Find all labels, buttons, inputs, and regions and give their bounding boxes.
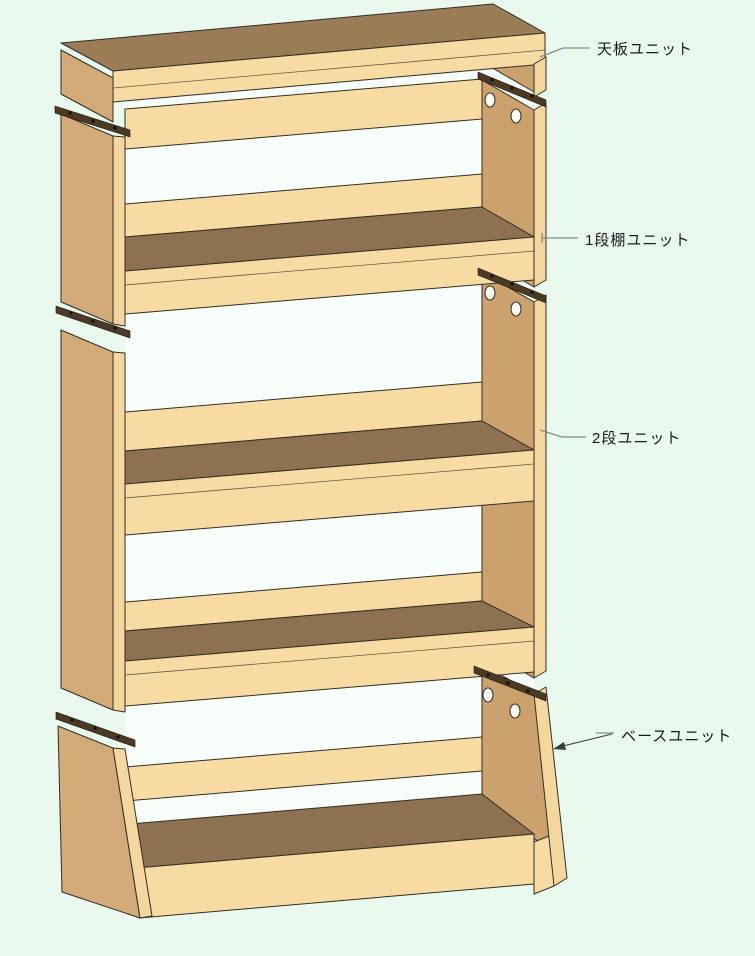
screw-hole (511, 109, 521, 123)
left-panel-tier2-front-edge (113, 352, 125, 712)
screw (530, 94, 533, 97)
callouts: 天板ユニット 1段棚ユニット 2段ユニット ベースユニット (540, 40, 732, 750)
screw (506, 681, 509, 684)
screw (70, 718, 73, 721)
diagram-canvas: 天板ユニット 1段棚ユニット 2段ユニット ベースユニット (0, 0, 755, 956)
screw-hole (511, 302, 521, 316)
screw (91, 319, 94, 322)
screw (510, 282, 513, 285)
label-tier2-unit: 2段ユニット (592, 430, 681, 447)
screw-hole (483, 688, 493, 702)
screw (510, 86, 513, 89)
screw (68, 111, 71, 114)
screw (93, 726, 96, 729)
leader-line-tier2 (540, 430, 586, 437)
label-top-unit: 天板ユニット (597, 40, 693, 58)
left-panel-tier1-unit (61, 114, 113, 324)
label-tier1-unit: 1段棚ユニット (585, 232, 690, 249)
leader-line-top-unit (540, 48, 590, 57)
arrow-line-base (559, 734, 612, 747)
label-base-unit: ベースユニット (621, 728, 732, 745)
screw (113, 326, 116, 329)
left-panel-tier2-unit (61, 330, 113, 710)
screw-hole (510, 704, 520, 718)
screw (526, 689, 529, 692)
screw (530, 290, 533, 293)
screw (486, 673, 489, 676)
shelf-assembly-diagram: 天板ユニット 1段棚ユニット 2段ユニット ベースユニット (0, 0, 755, 956)
right-edge-top-unit (534, 57, 546, 97)
arrowhead-base (553, 742, 566, 750)
screw (69, 311, 72, 314)
screw (490, 274, 493, 277)
screw (490, 78, 493, 81)
left-panel-tier1-front-edge (113, 136, 125, 326)
right-edge-tier1-unit (534, 103, 546, 287)
right-edge-tier2-unit (534, 295, 546, 678)
screw-hole (485, 286, 495, 300)
screw (91, 119, 94, 122)
screw (116, 735, 119, 738)
screw (113, 126, 116, 129)
screw-hole (485, 93, 495, 107)
